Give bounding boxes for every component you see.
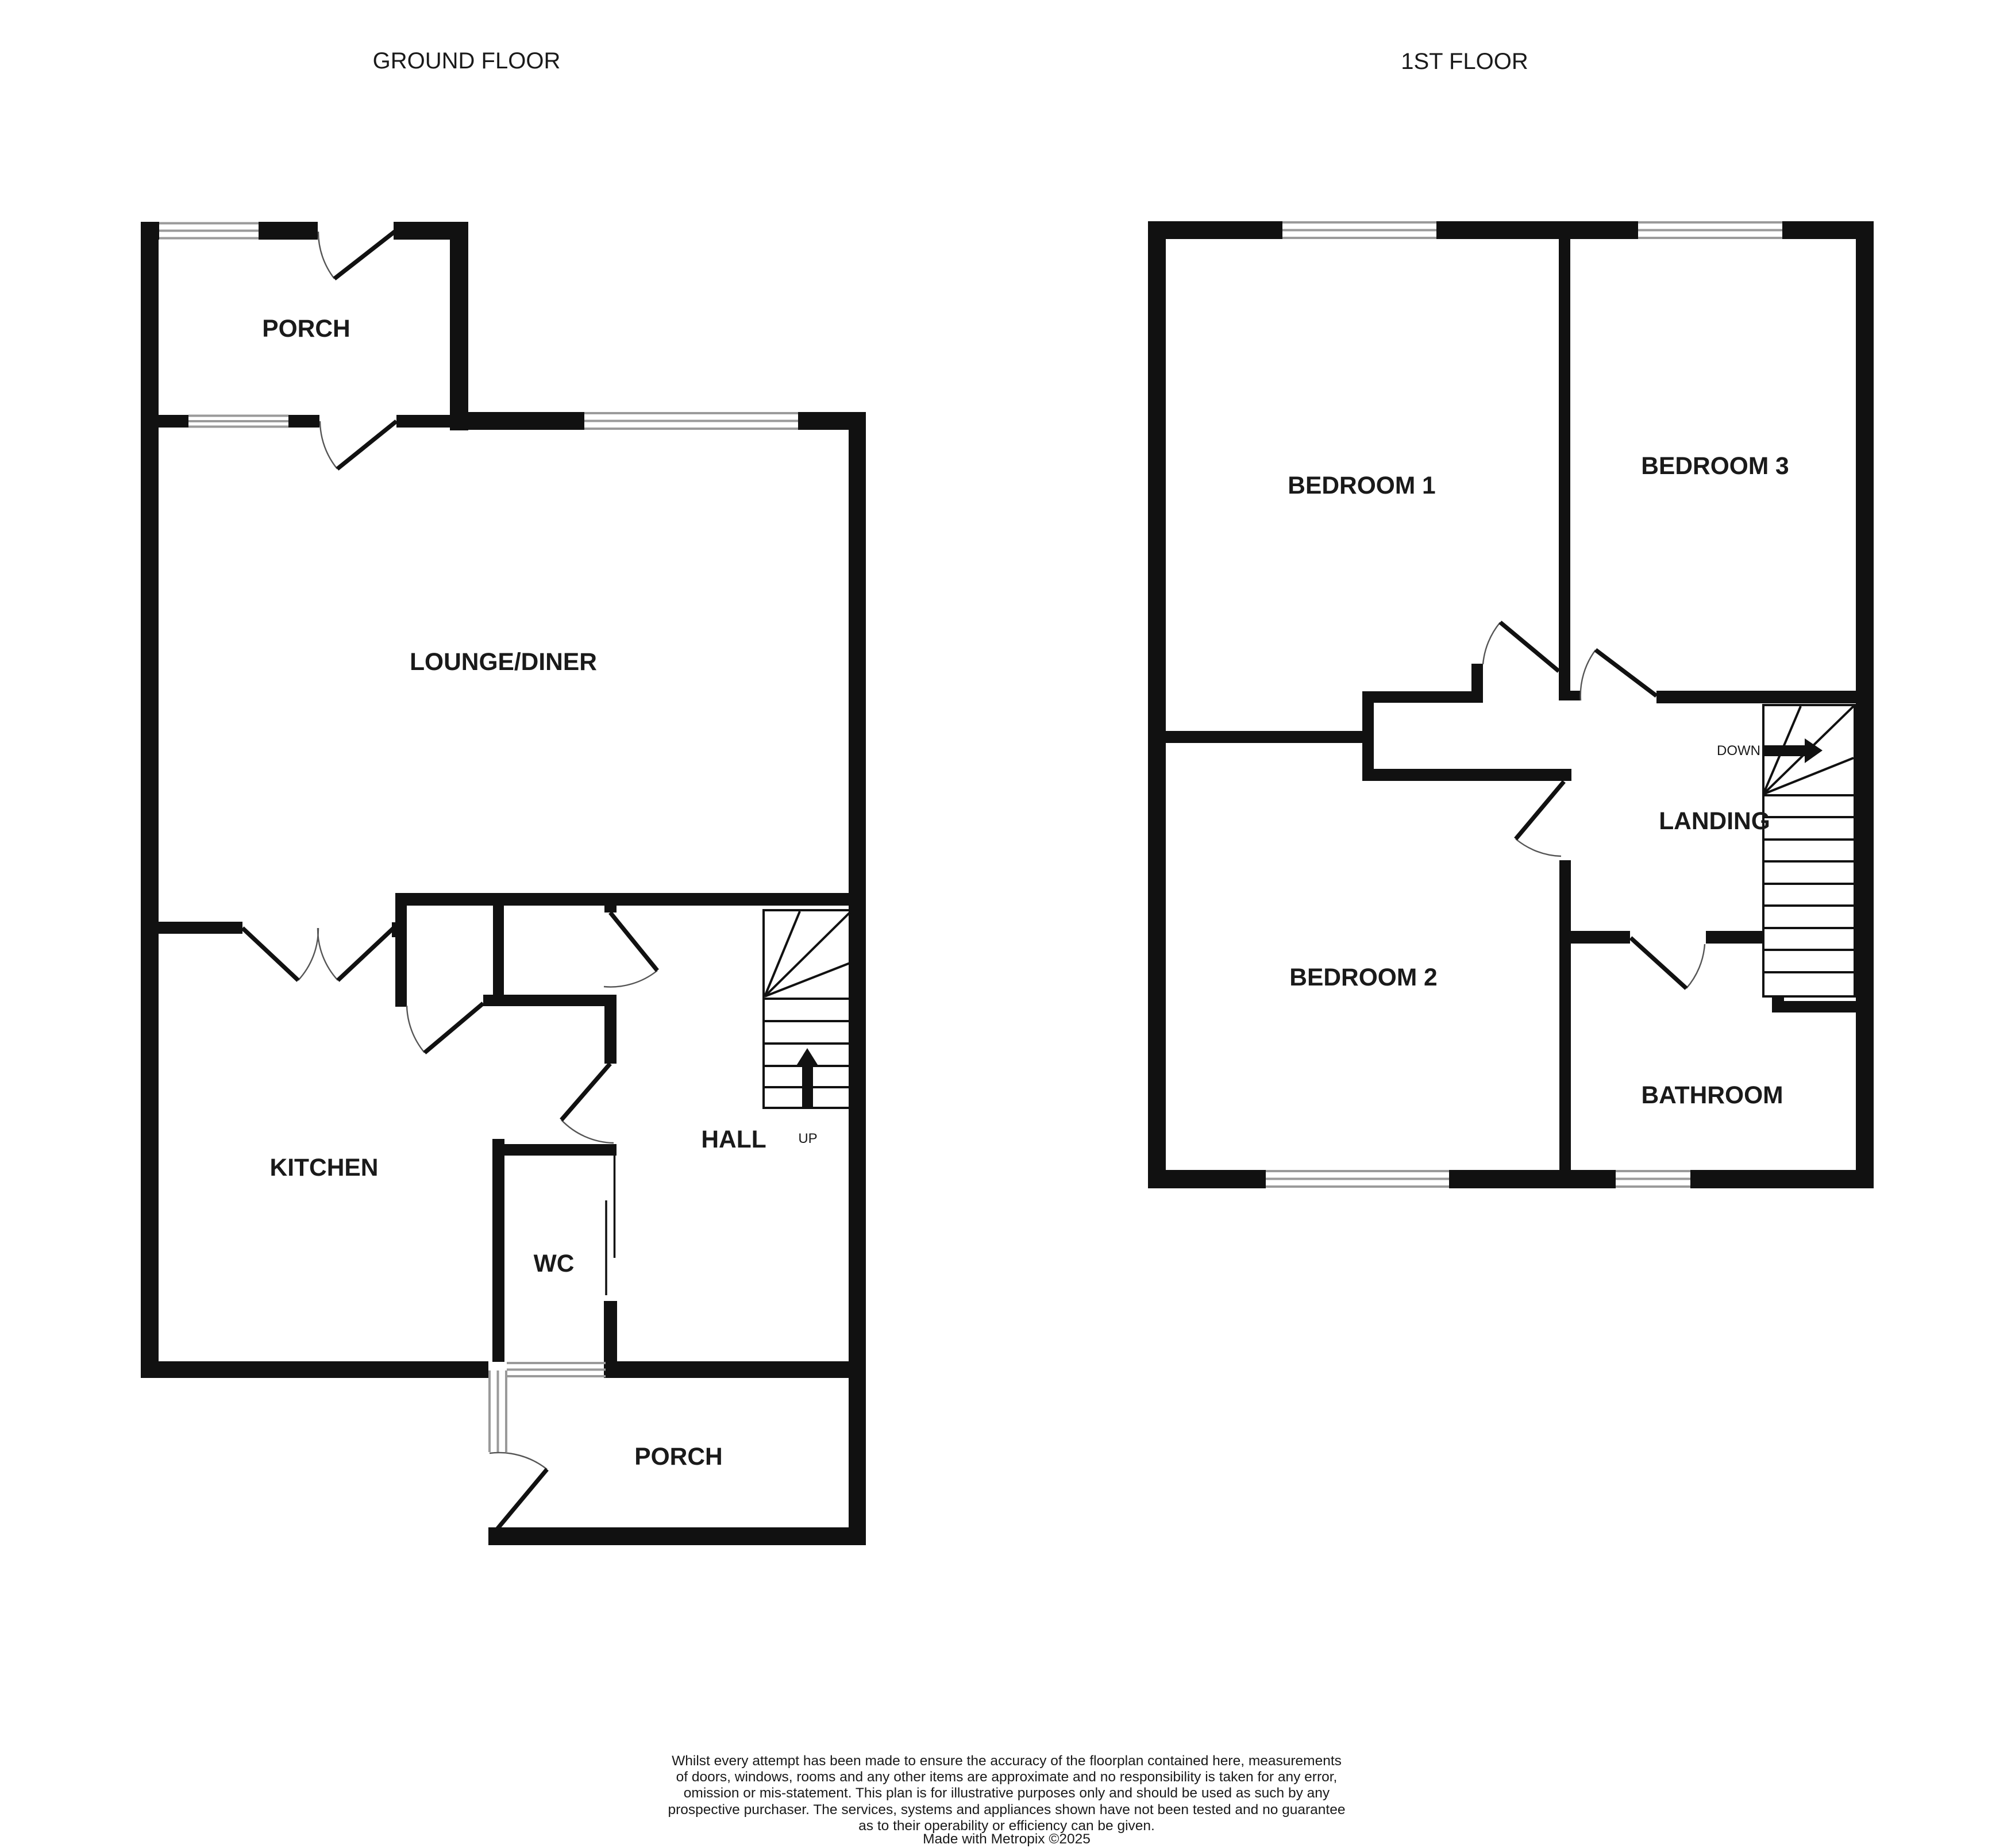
svg-text:BEDROOM 3: BEDROOM 3	[1641, 453, 1789, 480]
svg-text:Whilst every attempt has been: Whilst every attempt has been made to en…	[672, 1753, 1342, 1769]
svg-text:1ST FLOOR: 1ST FLOOR	[1401, 49, 1528, 74]
svg-text:BATHROOM: BATHROOM	[1641, 1082, 1783, 1109]
svg-text:UP: UP	[798, 1131, 817, 1146]
svg-text:omission or mis-statement. Thi: omission or mis-statement. This plan is …	[684, 1785, 1330, 1801]
svg-text:PORCH: PORCH	[634, 1443, 722, 1470]
svg-text:BEDROOM 1: BEDROOM 1	[1288, 472, 1435, 499]
svg-text:HALL: HALL	[701, 1126, 766, 1153]
svg-text:PORCH: PORCH	[262, 315, 350, 342]
svg-text:BEDROOM 2: BEDROOM 2	[1289, 964, 1437, 991]
svg-text:LANDING: LANDING	[1659, 808, 1770, 835]
svg-text:WC: WC	[534, 1250, 575, 1277]
svg-text:prospective purchaser. The ser: prospective purchaser. The services, sys…	[668, 1802, 1345, 1818]
svg-text:LOUNGE/DINER: LOUNGE/DINER	[410, 649, 597, 676]
svg-text:Made with Metropix ©2025: Made with Metropix ©2025	[923, 1831, 1091, 1847]
svg-text:of doors, windows, rooms and a: of doors, windows, rooms and any other i…	[676, 1769, 1338, 1785]
svg-text:GROUND FLOOR: GROUND FLOOR	[373, 48, 561, 74]
svg-text:KITCHEN: KITCHEN	[270, 1154, 379, 1181]
svg-text:DOWN: DOWN	[1717, 743, 1760, 759]
